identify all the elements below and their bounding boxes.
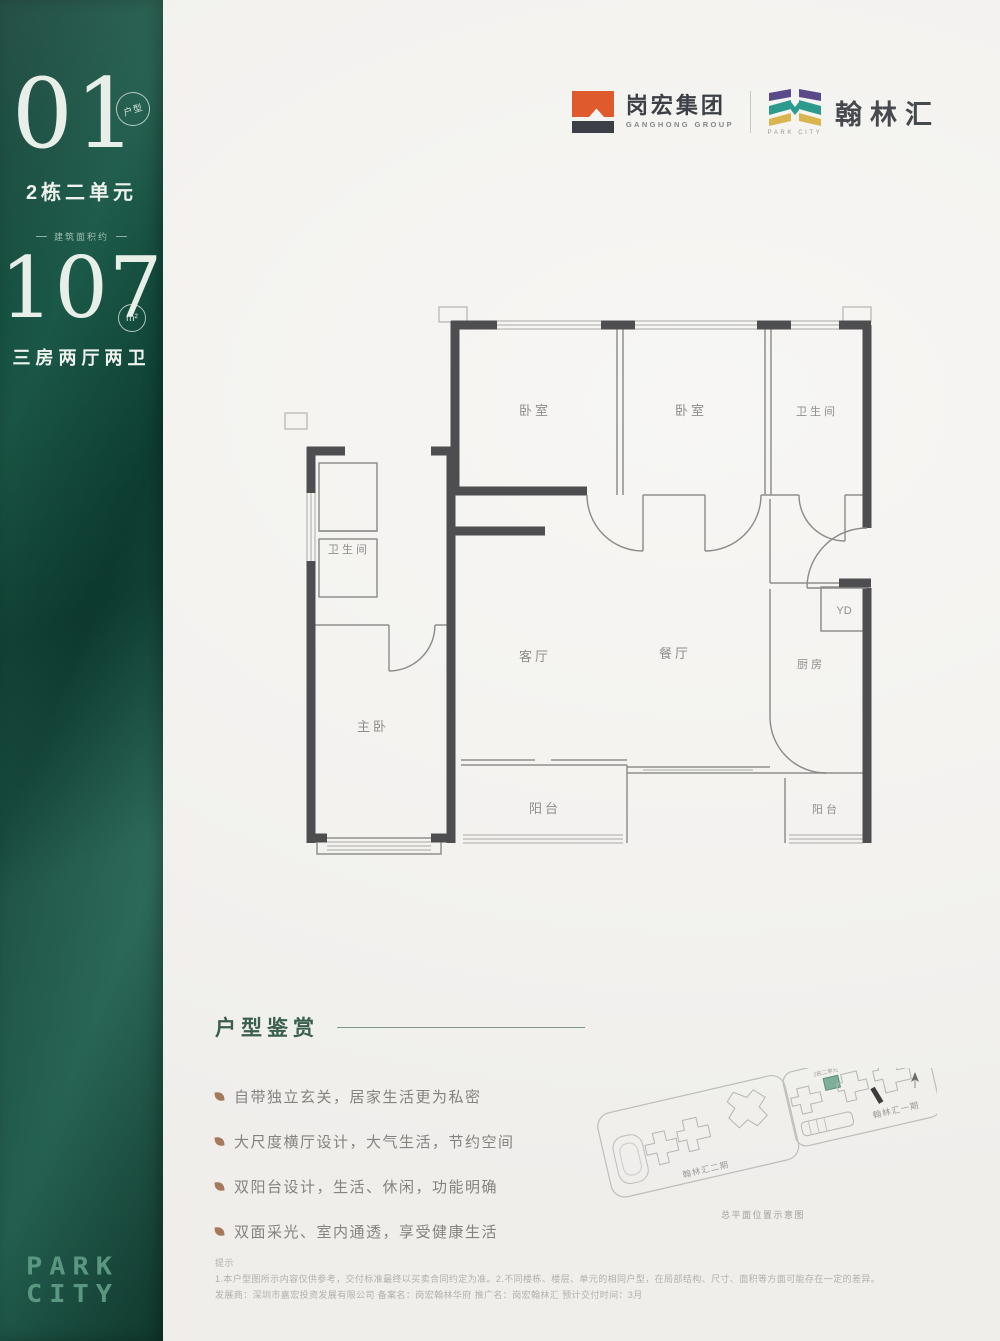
doors [389, 495, 867, 773]
feature-item: 自带独立玄关，居家生活更为私密 [215, 1086, 615, 1107]
area-unit-badge: m² [118, 304, 146, 332]
feature-item: 双面采光、室内通透，享受健康生活 [215, 1221, 615, 1242]
features-section: 户型鉴赏 自带独立玄关，居家生活更为私密 大尺度横厅设计，大气生活，节约空间 双… [215, 1012, 615, 1266]
disclaimer-title: 提示 [215, 1256, 905, 1271]
area-row: 107 m² [0, 246, 163, 330]
room-label-living: 客厅 [519, 649, 551, 664]
north-arrow-icon [911, 1072, 919, 1088]
room-label-bathroom-left: 卫生间 [328, 542, 370, 556]
ganghong-logo: 岗宏集团 GANGHONG GROUP [570, 89, 734, 135]
floorplan-drawing: 卧室 卧室 卫生间 卫生间 主卧 客厅 餐厅 厨房 YD 阳台 阳台 [283, 303, 903, 895]
feature-text: 双面采光、室内通透，享受健康生活 [234, 1221, 498, 1242]
feature-item: 大尺度横厅设计，大气生活，节约空间 [215, 1131, 615, 1152]
layout-text: 三房两厅两卫 [0, 344, 163, 370]
unit-name: 2栋二单元 [0, 176, 163, 205]
hanlinhui-logo-icon [767, 88, 823, 128]
feature-item: 双阳台设计，生活、休闲，功能明确 [215, 1176, 615, 1197]
ganghong-logo-icon [570, 89, 616, 135]
hanlinhui-subtitle: PARK CITY [768, 130, 823, 136]
features-title: 户型鉴赏 [215, 1012, 319, 1042]
inner-walls [307, 325, 869, 854]
features-list: 自带独立玄关，居家生活更为私密 大尺度横厅设计，大气生活，节约空间 双阳台设计，… [215, 1086, 615, 1242]
logo-divider [750, 91, 751, 133]
leaf-icon [214, 1136, 224, 1146]
room-label-duct: YD [836, 605, 851, 617]
room-label-master: 主卧 [357, 719, 389, 734]
windows [307, 321, 863, 850]
sitemap-phase2-label: 翰林汇二期 [682, 1159, 731, 1179]
leaf-icon [214, 1181, 224, 1191]
leaf-icon [214, 1226, 224, 1236]
room-label-kitchen: 厨房 [797, 658, 825, 671]
room-label-balcony-center: 阳台 [529, 801, 561, 816]
brand-wordmark: PARK CITY [26, 1253, 119, 1309]
sitemap-diagram: 翰林汇二期 2栋二单元 2栋四单元 翰林汇一期 总平面位置示意图 [585, 1068, 937, 1240]
sitemap-phase2-parcel: 翰林汇二期 [595, 1073, 801, 1200]
room-label-dining: 餐厅 [659, 646, 691, 661]
room-labels: 卧室 卧室 卫生间 卫生间 主卧 客厅 餐厅 厨房 YD 阳台 阳台 [328, 403, 852, 816]
disclaimer: 提示 1.本户型图所示内容仅供参考，交付标准最终以买卖合同约定为准。2.不同楼栋… [215, 1256, 905, 1303]
sitemap-caption: 总平面位置示意图 [721, 1209, 805, 1220]
room-label-bedroom1: 卧室 [519, 403, 551, 418]
room-label-bathroom-top: 卫生间 [796, 404, 838, 418]
feature-text: 双阳台设计，生活、休闲，功能明确 [234, 1176, 498, 1197]
feature-text: 大尺度横厅设计，大气生活，节约空间 [234, 1131, 515, 1152]
caption-dash [36, 236, 47, 237]
ganghong-name: 岗宏集团 [626, 95, 734, 117]
leaf-icon [214, 1091, 224, 1101]
brand-line2: CITY [26, 1281, 119, 1309]
feature-text: 自带独立玄关，居家生活更为私密 [234, 1086, 482, 1107]
hanlinhui-name: 翰林汇 [835, 93, 940, 132]
brand-line1: PARK [26, 1253, 119, 1281]
room-label-balcony-right: 阳台 [812, 802, 840, 816]
disclaimer-line1: 1.本户型图所示内容仅供参考，交付标准最终以买卖合同约定为准。2.不同楼栋、楼层… [215, 1272, 905, 1287]
sidebar: 01 户型 2栋二单元 建筑面积约 107 m² 三房两厅两卫 PARK CIT… [0, 0, 163, 1341]
caption-dash [116, 236, 127, 237]
hanlinhui-logo: PARK CITY 翰林汇 [767, 88, 940, 136]
header-logos: 岗宏集团 GANGHONG GROUP PARK CITY 翰林汇 [560, 80, 940, 144]
title-rule [337, 1027, 585, 1028]
poster-page: 01 户型 2栋二单元 建筑面积约 107 m² 三房两厅两卫 PARK CIT… [0, 0, 1000, 1341]
ganghong-subtitle: GANGHONG GROUP [626, 121, 734, 129]
room-label-bedroom2: 卧室 [675, 403, 707, 418]
disclaimer-line2: 发展商：深圳市嘉宏投资发展有限公司 备案名：岗宏翰林华府 推广名：岗宏翰林汇 预… [215, 1288, 905, 1303]
